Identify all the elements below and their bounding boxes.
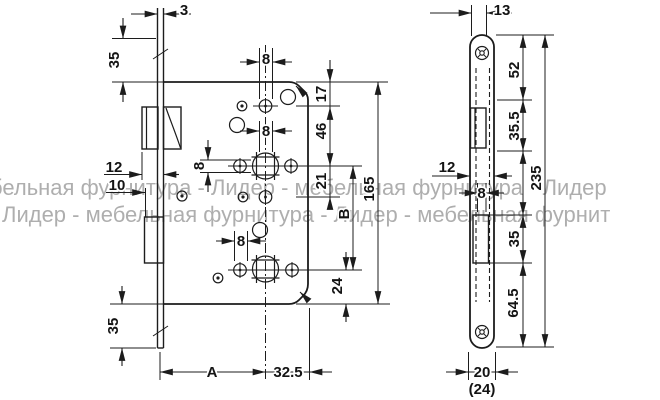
dim-bolt-to-edge: 24 (329, 252, 346, 322)
latch-opening (471, 108, 487, 148)
dim-label: 13 (494, 2, 511, 19)
dim-plate-width: 20 (24) (446, 352, 518, 398)
dim-label: 24 (329, 277, 346, 294)
dim-label: 10 (109, 177, 126, 194)
dim-label: 52 (506, 62, 523, 79)
dim-label: 32.5 (273, 364, 302, 381)
dim-label: 8 (262, 51, 270, 68)
dim-label: 165 (361, 176, 378, 201)
dim-hole-top: 8 (240, 48, 292, 99)
dim-label: (24) (469, 381, 496, 398)
dim-plate-thickness: 3 (131, 2, 191, 19)
dim-label: 35.5 (506, 111, 523, 140)
screw-top (476, 47, 489, 60)
dim-bottom-margin: 35 (105, 286, 163, 366)
dim-hole-mid: 8 (240, 121, 292, 152)
dim-label: 8 (262, 123, 270, 140)
dim-label: 3 (180, 2, 188, 19)
dim-label: 17 (313, 86, 330, 103)
front-view: 13 12 8 (430, 2, 554, 398)
dim-label: 12 (106, 159, 123, 176)
dim-hole-low: 8 (216, 231, 266, 261)
dim-case-width: 12 (432, 159, 512, 176)
watermark-line1: бельная фурнитура - Лидер - мебельная фу… (0, 175, 607, 200)
dim-label: A (207, 364, 218, 381)
plate-break-mark-top (153, 49, 168, 59)
technical-drawing-page: бельная фурнитура - Лидер - мебельная фу… (0, 0, 660, 400)
dim-top-offset: 13 (430, 2, 512, 36)
dim-label: 235 (528, 165, 545, 190)
dim-label: 35 (106, 52, 123, 69)
watermark: бельная фурнитура - Лидер - мебельная фу… (0, 175, 610, 227)
dim-case-height: 165 (361, 82, 378, 304)
dim-chain-bottom: A 32.5 (160, 308, 332, 381)
dim-label: 64.5 (505, 288, 522, 317)
plate-break-mark-bottom (153, 326, 168, 336)
dim-label: 12 (439, 159, 456, 176)
dim-label: 46 (313, 123, 330, 140)
dim-label: 8 (477, 185, 485, 202)
dim-label: B (336, 208, 353, 219)
screw-bottom (476, 326, 489, 339)
dim-label: 35 (105, 318, 122, 335)
dim-label: 21 (313, 173, 330, 190)
mortise-lock-drawing: бельная фурнитура - Лидер - мебельная фу… (0, 0, 660, 400)
dim-plate-length: 235 (528, 35, 545, 347)
dim-label: 20 (474, 364, 491, 381)
dim-label: 8 (191, 162, 208, 170)
latch-bevel (166, 108, 181, 148)
dim-label: 35 (506, 231, 523, 248)
dim-label: 8 (237, 233, 245, 250)
latch-bolt (142, 107, 181, 149)
dim-top-margin: 35 (106, 18, 163, 102)
